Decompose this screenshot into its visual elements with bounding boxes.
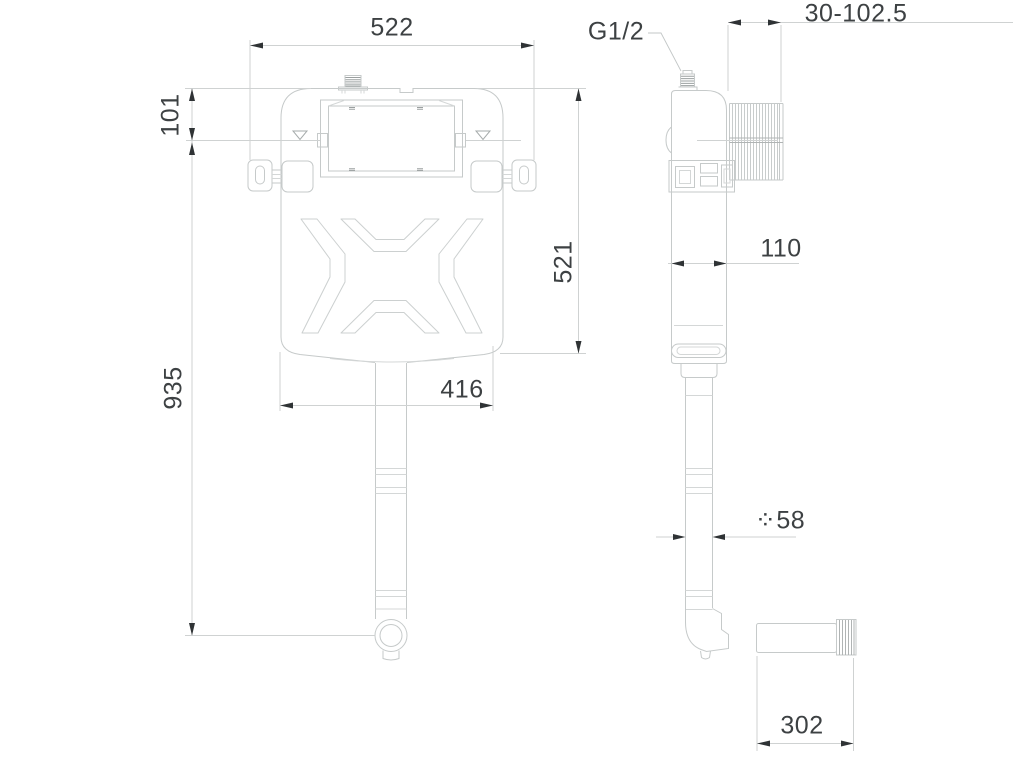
- dim-bottom-width: 416: [440, 378, 483, 403]
- side-rib-shaft: [697, 104, 783, 181]
- front-drain-pipe: [375, 363, 407, 660]
- side-outlet-elbow: [686, 608, 729, 659]
- inlet-leader-line: [648, 33, 681, 71]
- dim-top-width: 522: [370, 16, 413, 41]
- label-inlet-thread: G1/2: [588, 20, 644, 45]
- front-inlet-nut: [339, 76, 368, 94]
- side-drain-pipe: [681, 364, 717, 610]
- side-valve-frame: [669, 161, 735, 193]
- dim-outlet-pipe-length: 302: [780, 714, 823, 739]
- outlet-extension-pipe: [757, 620, 857, 656]
- dim-flush-pipe-diameter: ⁘58: [755, 509, 805, 534]
- side-body-outline: [666, 91, 727, 364]
- water-level-marks: [186, 131, 521, 141]
- dim-water-level-depth: 101: [159, 93, 184, 136]
- front-dimension-lines: [185, 40, 586, 636]
- side-inlet-nut: [679, 71, 698, 91]
- dim-tank-height: 521: [552, 240, 577, 283]
- dim-install-depth-range: 30-102.5: [805, 2, 908, 27]
- side-flush-slot: [672, 344, 727, 358]
- front-view: [185, 40, 586, 660]
- cistern-drawing: [0, 0, 1024, 768]
- side-dimension-lines: [656, 20, 1013, 752]
- front-x-pattern: [301, 219, 483, 333]
- side-view: [648, 20, 1013, 752]
- technical-drawing-canvas: 522 101 935 521 416 G1/2 30-102.5 110 ⁘5…: [0, 0, 1024, 768]
- front-tank-outline: [281, 89, 503, 363]
- dim-total-height: 935: [162, 366, 187, 409]
- dim-body-depth: 110: [760, 237, 801, 262]
- front-access-window: [318, 100, 466, 177]
